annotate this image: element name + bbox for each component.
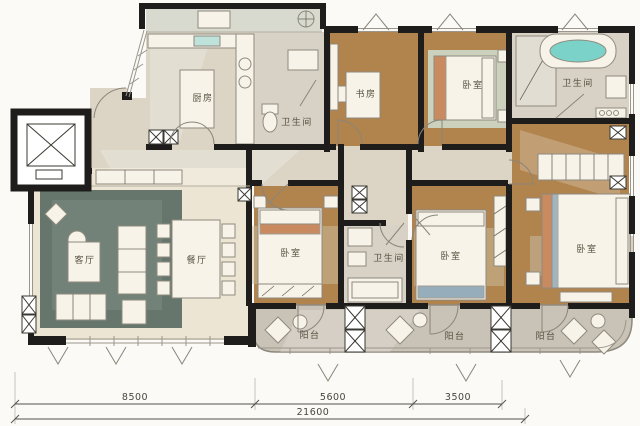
dim-segment-1: 8500	[122, 392, 148, 403]
nightstand	[254, 196, 266, 208]
dining-chair	[222, 262, 235, 276]
bed-blanket	[418, 286, 484, 298]
dining-chair	[222, 224, 235, 238]
kitchen-counter-side	[236, 34, 254, 144]
casement-window-icon	[172, 347, 192, 364]
column-hatch-icon	[491, 330, 511, 352]
bath-middle-label: 卫生间	[373, 252, 405, 264]
coffee-table	[122, 300, 146, 324]
awning-window-icon	[562, 14, 588, 30]
bath-top-left-label: 卫生间	[281, 116, 313, 128]
bed-pillows	[482, 58, 494, 118]
bedroom-top-label: 卧室	[462, 79, 483, 91]
bed-pillows	[418, 212, 484, 226]
column-hatch-icon	[345, 330, 365, 352]
toilet	[606, 76, 626, 98]
service-balcony-floor	[146, 8, 322, 32]
vanity	[348, 228, 372, 246]
nightstand	[324, 196, 338, 208]
wardrobe	[494, 196, 506, 266]
shoe-cabinet	[96, 170, 182, 184]
column-hatch-icon	[352, 186, 367, 199]
dim-segment-2: 5600	[320, 392, 346, 403]
kitchen-sink	[194, 36, 220, 46]
column-hatch-icon	[491, 306, 511, 329]
bedroom-middle-label: 卧室	[440, 250, 461, 262]
column-hatch-icon	[345, 306, 365, 329]
balcony-middle-label: 阳台	[444, 330, 465, 342]
study-label: 书房	[355, 88, 376, 100]
nightstand	[526, 272, 540, 285]
bedroom-left-label: 卧室	[280, 247, 301, 259]
toilet	[348, 252, 366, 266]
column-hatch-icon	[238, 188, 251, 201]
kitchen-label: 厨房	[192, 92, 213, 104]
bed-throw	[260, 224, 320, 234]
casement-window-icon	[48, 347, 68, 364]
entry-floor	[90, 88, 146, 146]
dining-chair	[157, 224, 170, 238]
living-room-label: 客厅	[74, 254, 95, 266]
floor-plan-page: 厨房 卫生间 书房 卧室 卫生间 客厅 餐厅 卧室 卫生间 卧室 卧室 阳台 阳…	[0, 0, 640, 426]
casement-window-icon	[560, 360, 580, 377]
louver-window-icon	[130, 50, 147, 84]
desk-chair	[338, 86, 346, 102]
elevator-shaft	[14, 112, 88, 188]
casement-window-icon	[106, 347, 126, 364]
master-bed-throw-2	[552, 194, 558, 288]
dining-chair	[157, 262, 170, 276]
casement-window-icon	[456, 364, 476, 381]
column-hatch-icon	[22, 315, 36, 333]
bed-pillows	[260, 210, 320, 224]
casement-window-icon	[318, 364, 338, 381]
dim-segment-3: 3500	[445, 392, 471, 403]
dimension-lines: 8500 5600 3500 21600	[11, 372, 529, 424]
bath-top-right-label: 卫生间	[562, 77, 594, 89]
bathtub-water	[550, 40, 606, 62]
dining-chair	[222, 243, 235, 257]
vanity	[288, 50, 318, 70]
bedroom-master-label: 卧室	[576, 243, 597, 255]
dining-chair	[157, 243, 170, 257]
awning-window-icon	[363, 14, 389, 30]
bed-throw	[434, 56, 446, 120]
column-hatch-icon	[610, 126, 626, 139]
balcony-stool	[413, 313, 427, 327]
floor-plan-drawing: 厨房 卫生间 书房 卧室 卫生间 客厅 餐厅 卧室 卫生间 卧室 卧室 阳台 阳…	[0, 0, 640, 426]
column-hatch-icon	[149, 130, 163, 144]
dining-chair	[222, 281, 235, 295]
column-hatch-icon	[610, 176, 626, 189]
balcony-stool	[293, 315, 307, 329]
bed-bench	[560, 292, 612, 302]
column-hatch-icon	[352, 200, 367, 213]
toilet	[263, 112, 277, 132]
balcony-right-label: 阳台	[535, 330, 556, 342]
master-bed-throw	[542, 194, 552, 288]
sofa	[56, 294, 106, 320]
dim-total: 21600	[297, 407, 330, 418]
master-bed-pillows	[616, 198, 628, 284]
side-sofa	[118, 226, 146, 294]
kitchen-counter-top	[148, 34, 238, 48]
dining-chair	[157, 281, 170, 295]
bookcase	[330, 44, 338, 110]
balcony-left-label: 阳台	[299, 329, 320, 341]
balcony-stool	[591, 314, 605, 328]
nightstand	[526, 198, 540, 211]
column-hatch-icon	[22, 296, 36, 314]
washing-machine	[198, 11, 230, 28]
awning-window-icon	[437, 14, 463, 30]
dining-room-label: 餐厅	[186, 254, 207, 266]
